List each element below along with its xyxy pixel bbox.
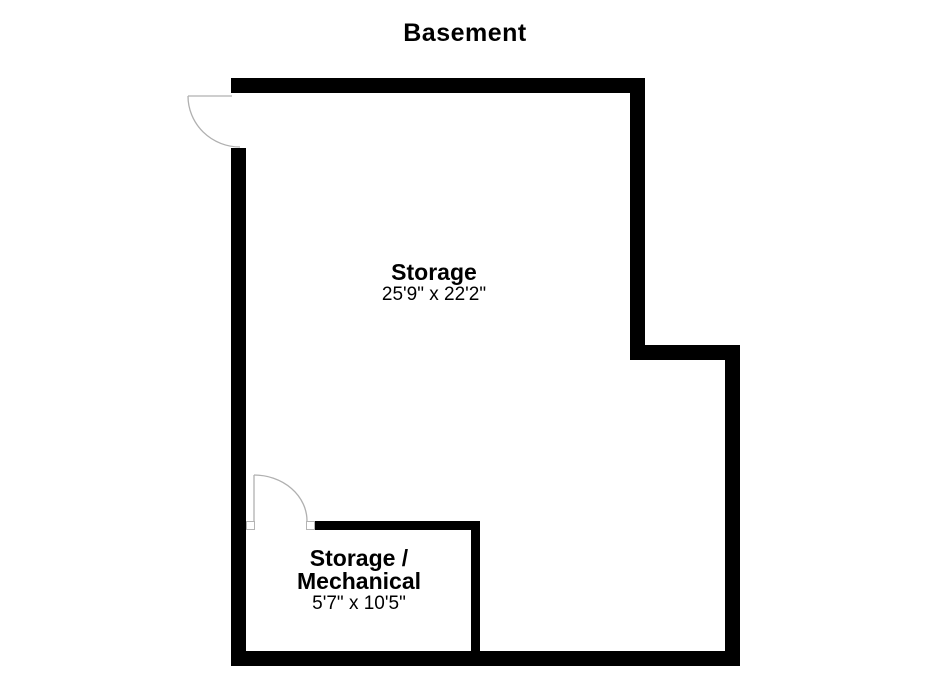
wall-partition-right [471, 521, 480, 651]
room-dimensions: 5'7" x 10'5" [249, 594, 469, 613]
wall-top [231, 78, 645, 93]
entry-door-swing-arc [188, 96, 240, 147]
floorplan-canvas: Basement Storage 25'9" x 22'2" Storage /… [0, 0, 930, 676]
wall-right-lower [725, 345, 740, 666]
inner-door-jamb-left [246, 521, 255, 530]
room-label-storage: Storage 25'9" x 22'2" [324, 261, 544, 304]
wall-partition-top [315, 521, 480, 530]
wall-left [231, 148, 246, 666]
inner-door-swing-arc [254, 475, 307, 521]
room-dimensions: 25'9" x 22'2" [324, 285, 544, 304]
wall-bottom [231, 651, 740, 666]
room-name-line1: Storage / [249, 547, 469, 570]
wall-right-upper [630, 78, 645, 360]
floorplan-title: Basement [0, 19, 930, 48]
room-label-storage-mechanical: Storage / Mechanical 5'7" x 10'5" [249, 547, 469, 613]
wall-step [630, 345, 740, 360]
room-name: Storage [324, 261, 544, 284]
room-name-line2: Mechanical [249, 570, 469, 593]
inner-door-jamb-right [306, 521, 315, 530]
